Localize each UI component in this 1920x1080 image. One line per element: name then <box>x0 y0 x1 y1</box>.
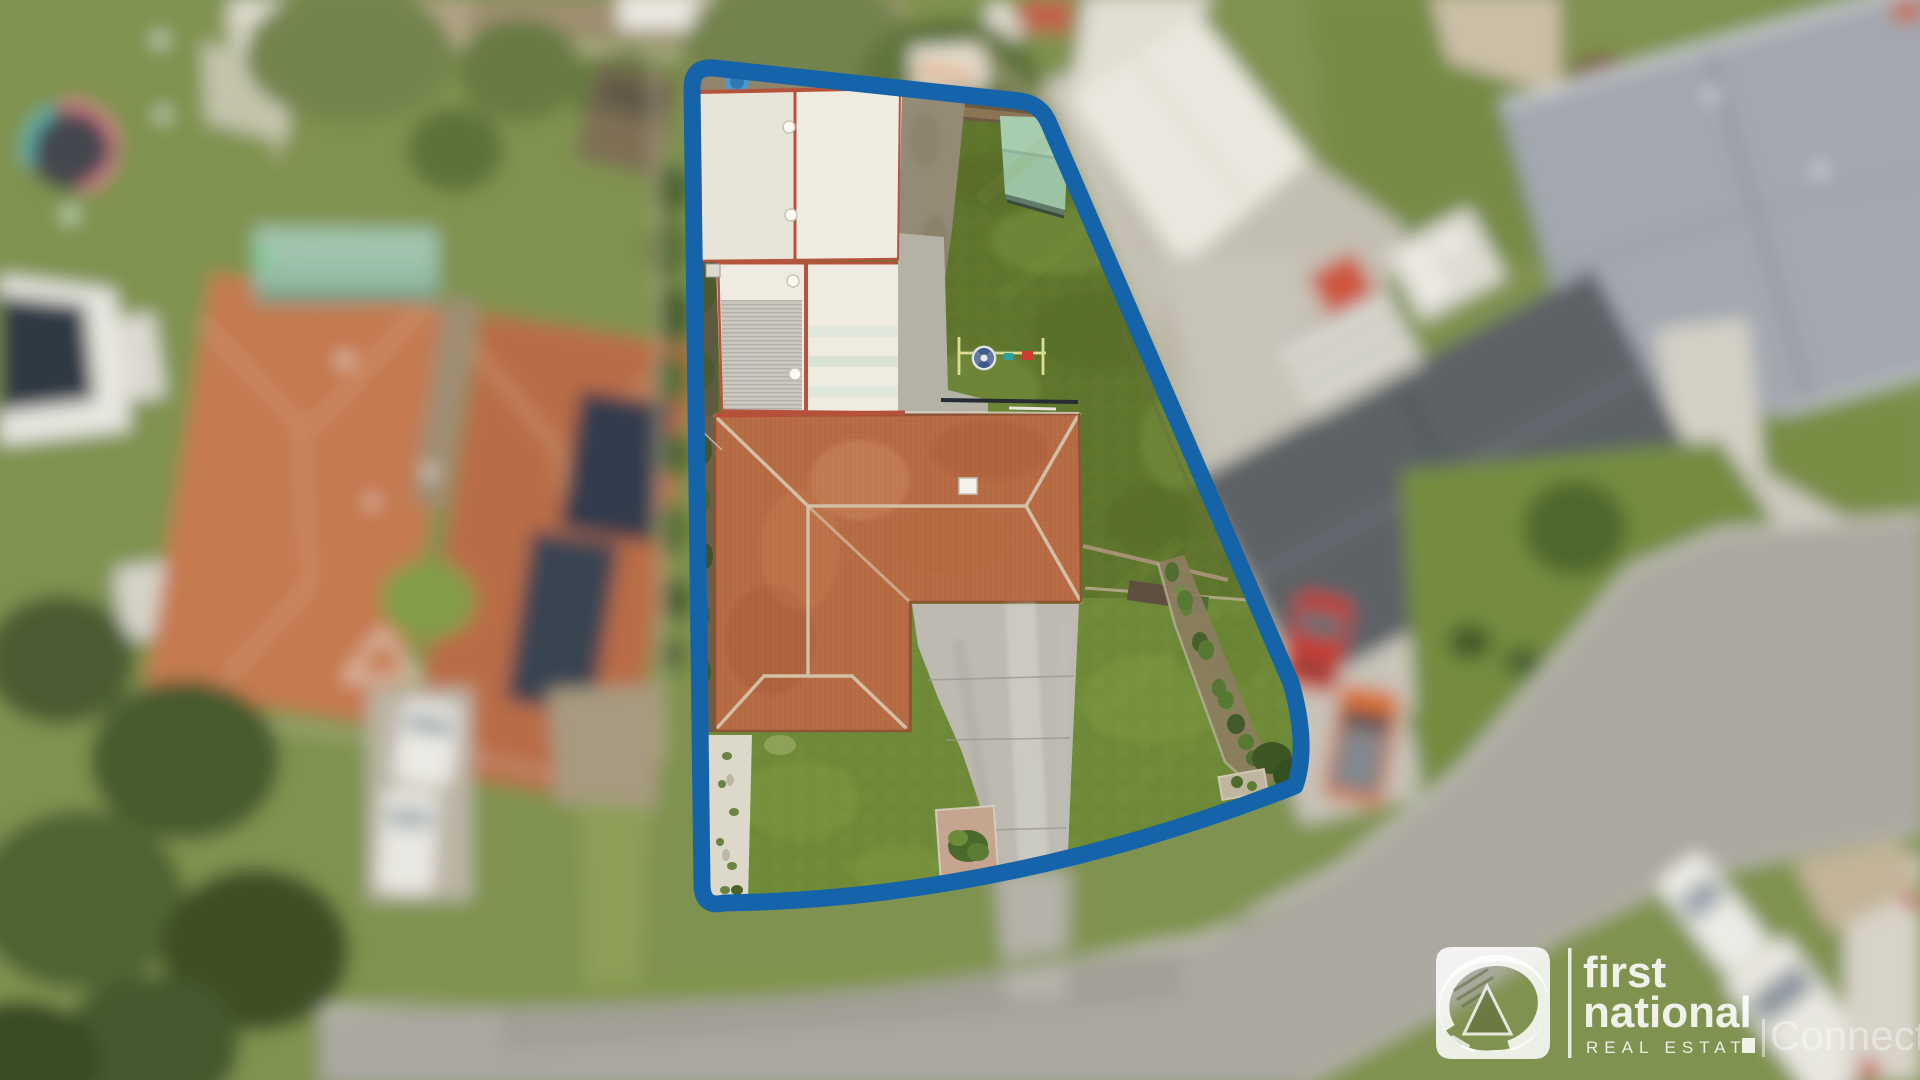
svg-text:Connect: Connect <box>1770 1012 1920 1059</box>
svg-text:REAL ESTAT: REAL ESTAT <box>1586 1038 1747 1057</box>
svg-text:national: national <box>1583 988 1752 1037</box>
